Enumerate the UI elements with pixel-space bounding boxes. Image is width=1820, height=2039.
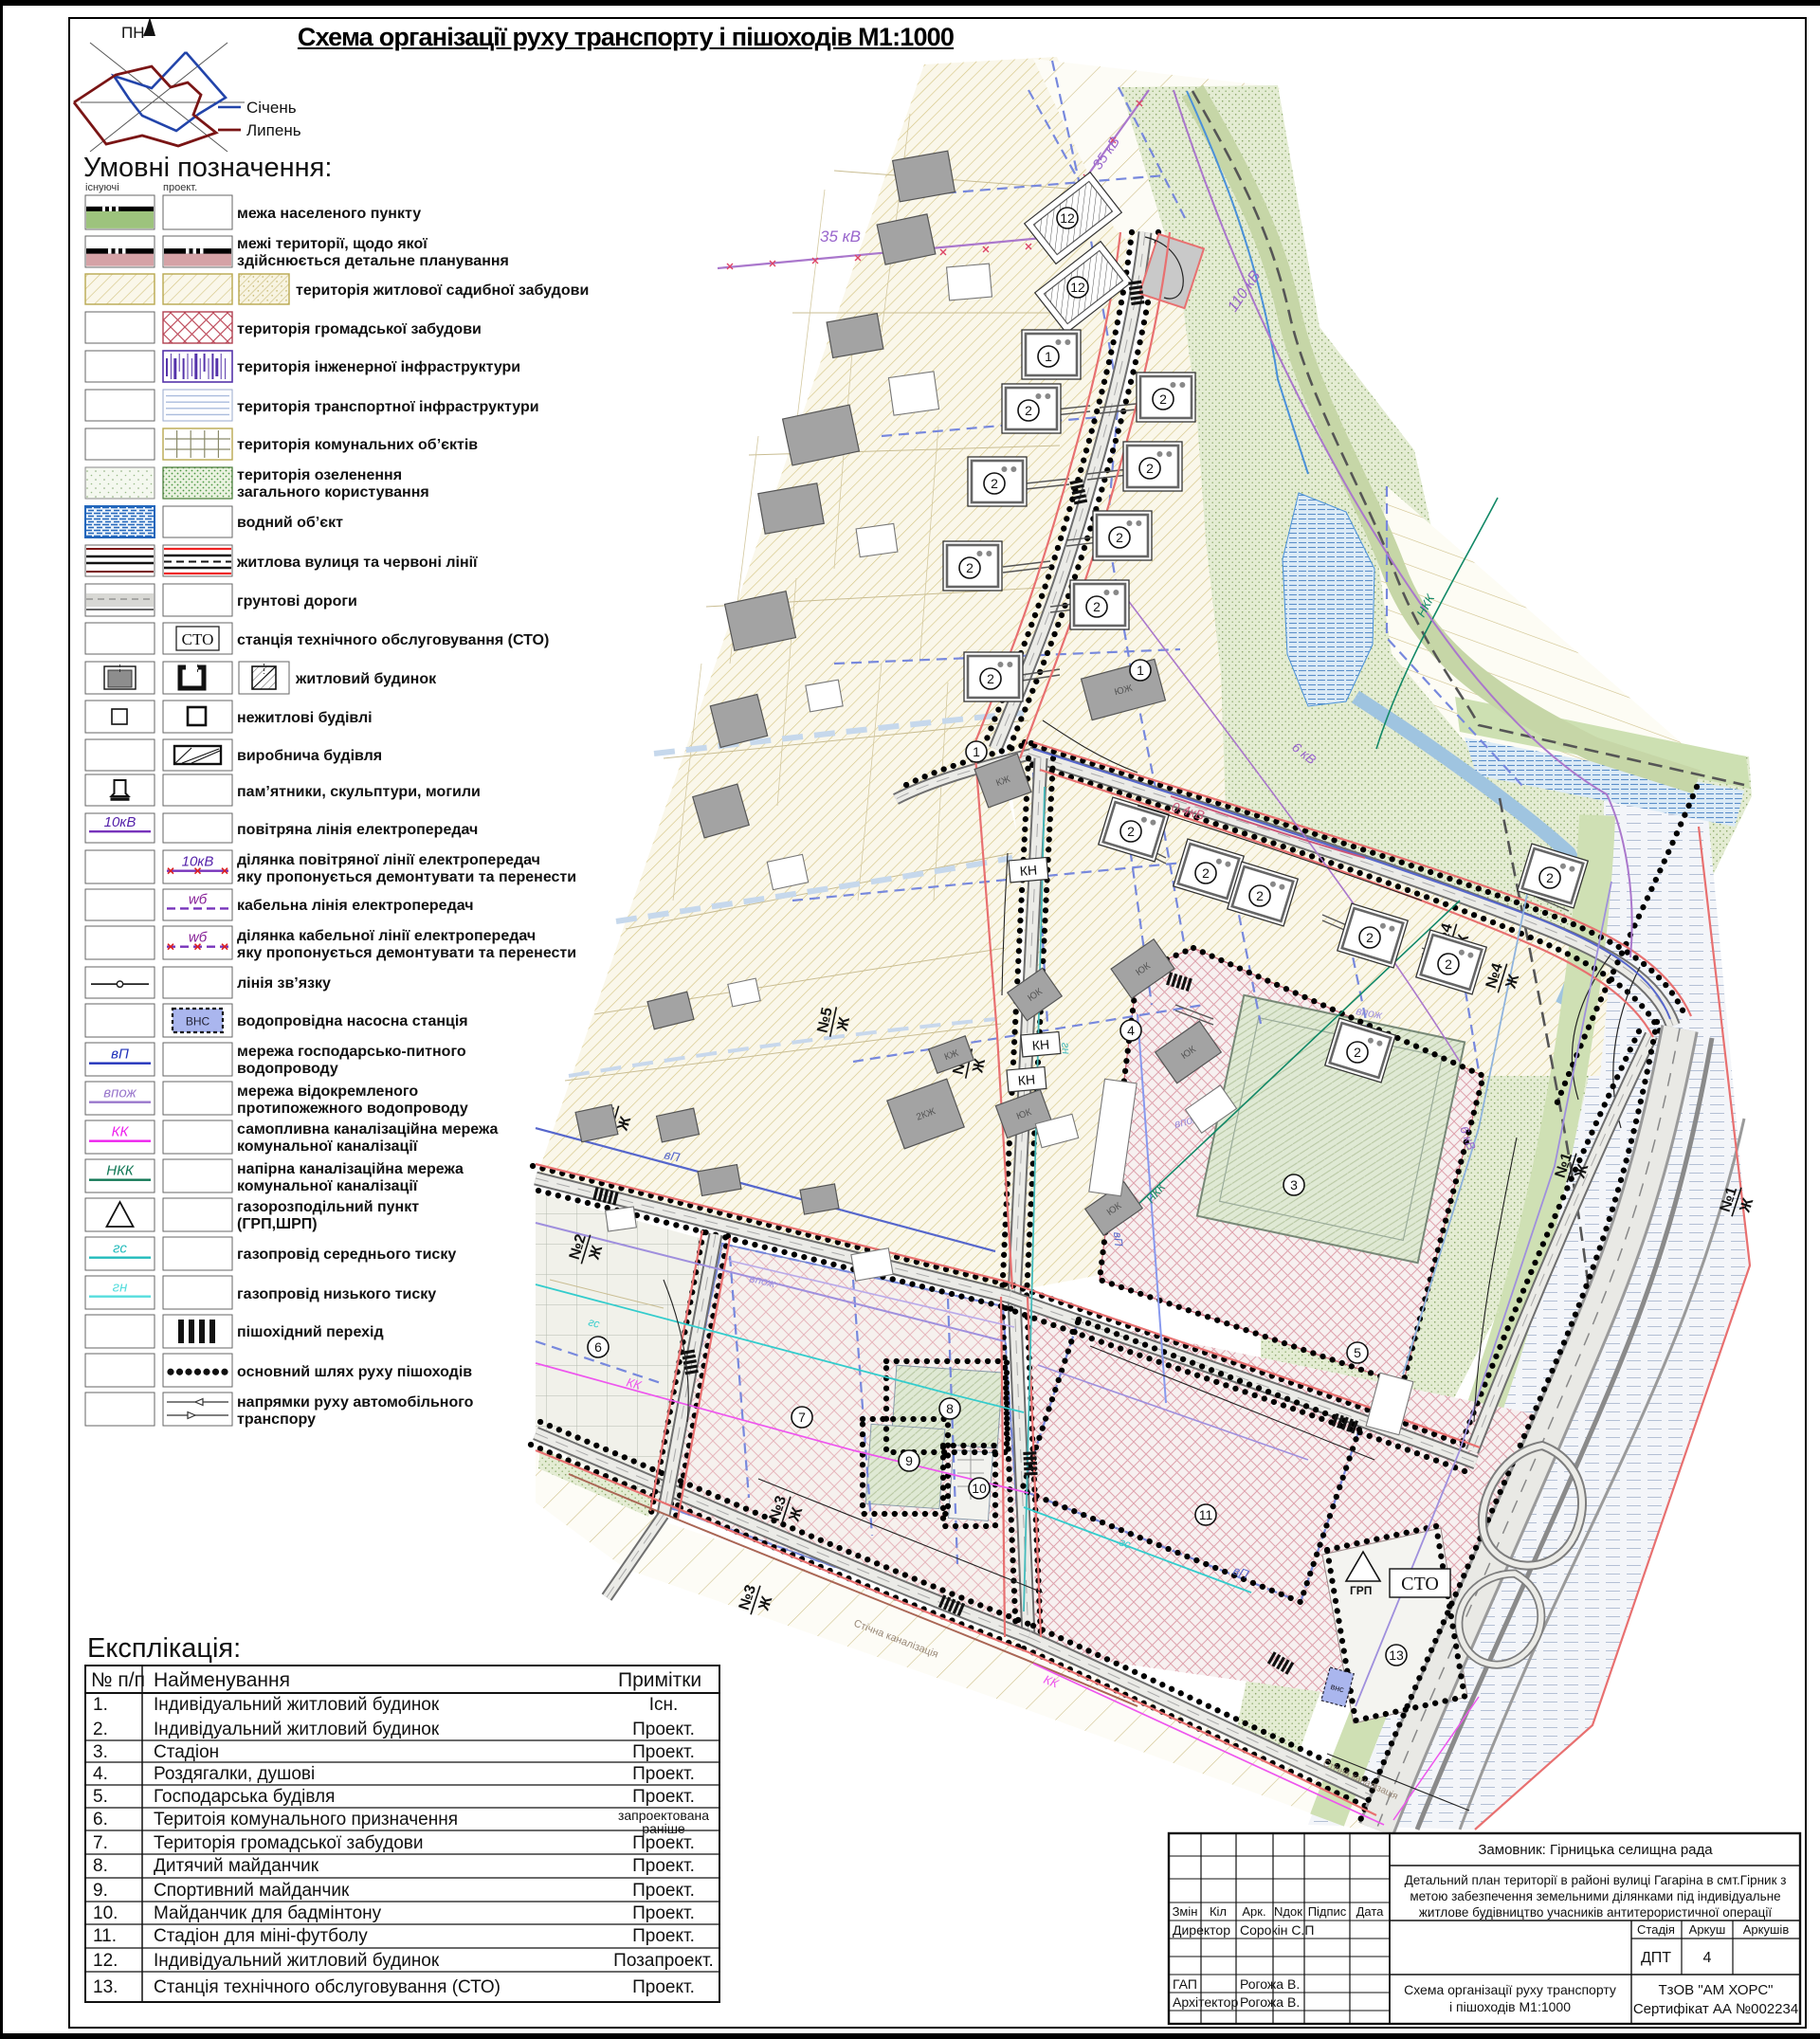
- svg-text:Індивідуальний житловий будино: Індивідуальний житловий будинок: [154, 1720, 440, 1739]
- svg-text:2: 2: [1202, 865, 1210, 881]
- svg-text:транспору: транспору: [237, 1411, 316, 1428]
- svg-text:Проект.: Проект.: [632, 1720, 695, 1739]
- svg-text:ГАП: ГАП: [1173, 1976, 1197, 1992]
- svg-text:2: 2: [1146, 461, 1154, 476]
- svg-text:Найменування: Найменування: [154, 1669, 290, 1691]
- svg-text:територія транспортної інфраст: територія транспортної інфраструктури: [237, 399, 539, 415]
- svg-text:5.: 5.: [93, 1787, 108, 1807]
- svg-text:ПН: ПН: [121, 24, 145, 42]
- svg-text:ГРП: ГРП: [1350, 1584, 1372, 1597]
- svg-text:водопровідна насосна станція: водопровідна насосна станція: [237, 1013, 468, 1029]
- svg-text:(ГРП,ШРП): (ГРП,ШРП): [237, 1216, 318, 1232]
- svg-text:2: 2: [966, 560, 974, 575]
- svg-text:2: 2: [1366, 930, 1374, 945]
- svg-text:4.: 4.: [93, 1764, 108, 1784]
- svg-text:напірна каналізаційна мережа: напірна каналізаційна мережа: [237, 1161, 464, 1177]
- svg-text:Індивідуальний житловий будино: Індивідуальний житловий будинок: [154, 1951, 440, 1971]
- svg-text:Сорокін С.П: Сорокін С.П: [1240, 1922, 1314, 1938]
- svg-text:комунальної каналізації: комунальної каналізації: [237, 1138, 418, 1155]
- svg-text:2: 2: [1354, 1045, 1361, 1060]
- svg-text:СТО: СТО: [1401, 1574, 1439, 1594]
- svg-text:Стадіон: Стадіон: [154, 1742, 219, 1762]
- svg-text:вП: вП: [1111, 1231, 1125, 1247]
- svg-text:2: 2: [1093, 599, 1101, 614]
- svg-text:№ п/п: № п/п: [91, 1669, 145, 1691]
- svg-text:територія інженерної інфрастру: територія інженерної інфраструктури: [237, 359, 520, 375]
- svg-text:Теритоія комунального призначе: Теритоія комунального призначення: [154, 1810, 458, 1830]
- svg-text:12: 12: [1070, 280, 1085, 295]
- svg-text:6.: 6.: [93, 1810, 108, 1830]
- svg-text:ВНС: ВНС: [186, 1015, 210, 1029]
- svg-text:2: 2: [991, 476, 998, 491]
- svg-text:Замовник: Гірницька селищна ра: Замовник: Гірницька селищна рада: [1478, 1842, 1713, 1858]
- svg-text:2: 2: [1127, 824, 1135, 839]
- svg-text:11.: 11.: [93, 1926, 117, 1946]
- svg-text:СТО: СТО: [182, 630, 214, 648]
- svg-text:станція технічного обслуговува: станція технічного обслуговування (СТО): [237, 632, 549, 648]
- svg-text:Існ.: Існ.: [649, 1695, 679, 1715]
- svg-text:35 кВ: 35 кВ: [820, 228, 861, 246]
- svg-text:Січень: Січень: [246, 99, 297, 117]
- svg-text:гс: гс: [113, 1241, 127, 1257]
- svg-text:газопровід середнього тиску: газопровід середнього тиску: [237, 1247, 456, 1263]
- svg-text:Проект.: Проект.: [632, 1881, 695, 1901]
- svg-text:житлова вулиця та червоні ліні: житлова вулиця та червоні лінії: [236, 555, 478, 571]
- svg-text:Архітектор: Архітектор: [1173, 1994, 1238, 2010]
- svg-text:1.: 1.: [93, 1695, 108, 1715]
- svg-text:кабельна лінія електропередач: кабельна лінія електропередач: [237, 898, 474, 914]
- svg-text:8.: 8.: [93, 1856, 108, 1876]
- svg-text:Проект.: Проект.: [632, 1856, 695, 1876]
- svg-text:Рогожа В.: Рогожа В.: [1240, 1994, 1300, 2010]
- svg-text:10кВ: 10кВ: [104, 814, 136, 830]
- svg-text:НКК: НКК: [106, 1163, 135, 1179]
- svg-text:Станція технічного обслуговува: Станція технічного обслуговування (СТО): [154, 1977, 500, 1997]
- svg-text:wб: wб: [189, 891, 208, 907]
- svg-text:комунальної каналізації: комунальної каналізації: [237, 1178, 418, 1194]
- svg-text:здійснюється детальне плануван: здійснюється детальне планування: [237, 253, 509, 269]
- svg-text:2: 2: [987, 671, 994, 686]
- svg-text:Сертифікат АА №002234: Сертифікат АА №002234: [1633, 2001, 1798, 2017]
- svg-text:2.: 2.: [93, 1720, 108, 1739]
- svg-text:напрямки руху автомобільного: напрямки руху автомобільного: [237, 1394, 474, 1411]
- svg-text:Умовні позначення:: Умовні позначення:: [83, 153, 332, 183]
- svg-text:водопроводу: водопроводу: [237, 1061, 338, 1077]
- svg-text:1: 1: [1045, 349, 1052, 364]
- svg-text:10: 10: [972, 1481, 987, 1496]
- svg-text:4: 4: [1127, 1023, 1135, 1038]
- svg-text:проект.: проект.: [163, 182, 197, 193]
- svg-text:9.: 9.: [93, 1881, 108, 1901]
- svg-text:КК: КК: [112, 1124, 130, 1140]
- svg-text:Проект.: Проект.: [632, 1742, 695, 1762]
- svg-text:самопливна каналізаційна мереж: самопливна каналізаційна мережа: [237, 1121, 498, 1138]
- svg-text:4: 4: [1703, 1950, 1712, 1966]
- svg-text:Аркуш: Аркуш: [1689, 1922, 1726, 1937]
- svg-text:6: 6: [594, 1339, 602, 1355]
- svg-text:і пішоходів М1:1000: і пішоходів М1:1000: [1449, 1999, 1571, 2014]
- svg-text:Проект.: Проект.: [632, 1787, 695, 1807]
- svg-text:Проект.: Проект.: [632, 1926, 695, 1946]
- svg-text:територія громадської забудови: територія громадської забудови: [237, 321, 482, 337]
- svg-text:Дитячий майданчик: Дитячий майданчик: [154, 1856, 319, 1876]
- svg-text:Липень: Липень: [246, 121, 301, 139]
- svg-text:КН: КН: [1019, 862, 1038, 879]
- svg-text:12: 12: [1060, 210, 1075, 226]
- svg-text:існуючі: існуючі: [85, 182, 119, 193]
- svg-text:Директор: Директор: [1173, 1922, 1230, 1938]
- svg-text:3: 3: [1290, 1177, 1298, 1192]
- svg-text:вП: вП: [111, 1047, 129, 1063]
- svg-text:Примітки: Примітки: [618, 1669, 701, 1691]
- svg-text:2: 2: [1116, 530, 1123, 545]
- svg-text:1: 1: [1137, 663, 1144, 678]
- svg-text:Стадіон для міні-футболу: Стадіон для міні-футболу: [154, 1926, 368, 1946]
- svg-text:2: 2: [1025, 403, 1032, 418]
- svg-text:Арк.: Арк.: [1242, 1904, 1265, 1919]
- svg-text:10.: 10.: [93, 1903, 118, 1923]
- svg-text:метою забезпечення земельними: метою забезпечення земельними ділянками …: [1410, 1889, 1780, 1903]
- svg-text:ДПТ: ДПТ: [1641, 1950, 1671, 1966]
- svg-text:2: 2: [1159, 391, 1167, 407]
- svg-text:повітряна лінія електропередач: повітряна лінія електропередач: [237, 822, 478, 838]
- svg-text:3.: 3.: [93, 1742, 108, 1762]
- svg-text:водний обʼєкт: водний обʼєкт: [237, 515, 343, 531]
- svg-text:Схема організації руху транспо: Схема організації руху транспорту: [1404, 1982, 1616, 1997]
- svg-text:9: 9: [905, 1453, 913, 1468]
- svg-text:11: 11: [1199, 1507, 1213, 1522]
- svg-text:13.: 13.: [93, 1977, 118, 1997]
- svg-text:2: 2: [1445, 956, 1452, 972]
- svg-text:Проект.: Проект.: [632, 1833, 695, 1853]
- svg-text:територія комунальних обʼєктів: територія комунальних обʼєктів: [237, 437, 478, 453]
- svg-text:межа населеного пункту: межа населеного пункту: [237, 206, 421, 222]
- svg-text:мережа господарсько-питного: мережа господарсько-питного: [237, 1044, 466, 1060]
- svg-text:wб: wб: [189, 930, 208, 946]
- svg-text:протипожежного водопроводу: протипожежного водопроводу: [237, 1101, 468, 1117]
- svg-text:територія озеленення: територія озеленення: [237, 467, 402, 483]
- svg-text:грунтові дороги: грунтові дороги: [237, 593, 357, 610]
- svg-text:мережа відокремленого: мережа відокремленого: [237, 1083, 418, 1100]
- svg-text:КН: КН: [1017, 1071, 1036, 1088]
- svg-text:Підпис: Підпис: [1308, 1904, 1347, 1919]
- svg-text:яку пропонується демонтувати т: яку пропонується демонтувати та перенест…: [236, 945, 576, 961]
- svg-text:памʼятники, скульптури, могили: памʼятники, скульптури, могили: [237, 784, 481, 800]
- svg-text:межі території, щодо якої: межі території, щодо якої: [237, 236, 428, 252]
- svg-text:2: 2: [1256, 888, 1264, 903]
- svg-text:Кіл: Кіл: [1210, 1904, 1227, 1919]
- svg-text:8: 8: [946, 1401, 954, 1416]
- svg-text:лінія звʼязку: лінія звʼязку: [237, 975, 331, 992]
- svg-text:7: 7: [798, 1410, 806, 1425]
- svg-text:5: 5: [1354, 1345, 1361, 1360]
- svg-text:Експлікація:: Експлікація:: [87, 1633, 241, 1664]
- svg-text:Аркушів: Аркушів: [1743, 1922, 1790, 1937]
- svg-text:Позапроект.: Позапроект.: [613, 1951, 714, 1971]
- svg-text:основний шлях руху пішоходів: основний шлях руху пішоходів: [237, 1364, 472, 1380]
- svg-text:газорозподільний пункт: газорозподільний пункт: [237, 1199, 419, 1215]
- svg-text:ділянка кабельної лінії електр: ділянка кабельної лінії електропередач: [237, 928, 536, 944]
- svg-text:Територія громадської забудови: Територія громадської забудови: [154, 1833, 424, 1853]
- svg-text:7.: 7.: [93, 1833, 108, 1853]
- svg-text:ділянка повітряної лінії елект: ділянка повітряної лінії електропередач: [237, 852, 540, 868]
- svg-text:впож: впож: [103, 1085, 136, 1101]
- svg-text:Змін: Змін: [1173, 1904, 1198, 1919]
- svg-text:10кВ: 10кВ: [182, 854, 214, 870]
- svg-text:Стадія: Стадія: [1637, 1922, 1675, 1937]
- svg-text:територія житлової садибної за: територія житлової садибної забудови: [296, 282, 589, 299]
- svg-text:2: 2: [1546, 870, 1554, 885]
- svg-text:виробнича будівля: виробнича будівля: [237, 748, 382, 764]
- svg-text:Проект.: Проект.: [632, 1977, 695, 1997]
- svg-text:загального користування: загального користування: [237, 484, 429, 501]
- svg-text:Індивідуальний житловий будино: Індивідуальний житловий будинок: [154, 1695, 440, 1715]
- svg-text:1: 1: [973, 744, 980, 759]
- svg-text:КН: КН: [1031, 1036, 1050, 1053]
- svg-text:Проект.: Проект.: [632, 1764, 695, 1784]
- svg-text:Проект.: Проект.: [632, 1903, 695, 1923]
- svg-text:Детальний план території в рай: Детальний план території в районі вулиці…: [1405, 1873, 1787, 1887]
- svg-text:житлове будівництво учасників: житлове будівництво учасників антитерори…: [1419, 1905, 1772, 1920]
- svg-text:13: 13: [1389, 1648, 1404, 1663]
- svg-text:Дата: Дата: [1356, 1904, 1385, 1919]
- svg-text:гн: гн: [113, 1280, 128, 1296]
- svg-text:житловий будинок: житловий будинок: [295, 671, 437, 687]
- svg-text:газопровід низького тиску: газопровід низького тиску: [237, 1286, 436, 1302]
- svg-text:Рогожа В.: Рогожа В.: [1240, 1976, 1300, 1992]
- svg-text:Роздягалки, душові: Роздягалки, душові: [154, 1764, 315, 1784]
- svg-text:12.: 12.: [93, 1951, 118, 1971]
- svg-text:нежитлові будівлі: нежитлові будівлі: [237, 710, 373, 726]
- svg-text:яку пропонується демонтувати т: яку пропонується демонтувати та перенест…: [236, 869, 576, 885]
- svg-text:Майданчик для бадмінтону: Майданчик для бадмінтону: [154, 1903, 382, 1923]
- svg-text:пішохідний перехід: пішохідний перехід: [237, 1324, 384, 1340]
- svg-text:Господарська будівля: Господарська будівля: [154, 1787, 335, 1807]
- svg-text:ТзОВ "АМ ХОРС": ТзОВ "АМ ХОРС": [1658, 1982, 1773, 1998]
- svg-text:Nдок: Nдок: [1274, 1904, 1302, 1919]
- svg-text:Спортивний майданчик: Спортивний майданчик: [154, 1881, 350, 1901]
